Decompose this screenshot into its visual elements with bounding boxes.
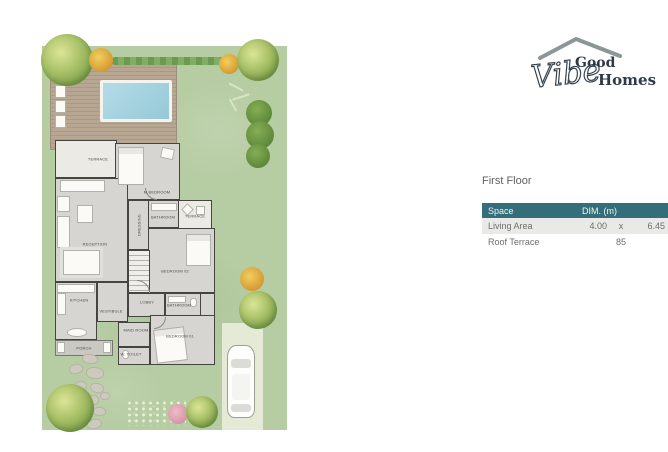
- car-roof: [232, 374, 250, 400]
- room-label: W. TOILET: [121, 352, 142, 357]
- cell-dim-sep: 85: [607, 237, 635, 247]
- room-label: TERRACE: [185, 214, 205, 219]
- room-label: LOBBY: [140, 300, 154, 305]
- cell-space: Living Area: [482, 221, 563, 231]
- room-vestibule: [97, 282, 128, 322]
- kitchen-counter: [57, 284, 95, 293]
- room-label: MAID ROOM: [124, 328, 149, 333]
- car-rear-window: [231, 404, 251, 412]
- room-maid: [118, 322, 150, 347]
- cell-space: Roof Terrace: [482, 237, 563, 247]
- dimensions-table: Space DIM. (m) Living Area 4.00 x 6.45 R…: [482, 203, 668, 250]
- swimming-pool: [100, 80, 172, 122]
- deck-planter: [55, 115, 66, 128]
- armchair: [57, 196, 70, 212]
- tree: [219, 54, 239, 74]
- kitchen-counter: [57, 293, 66, 315]
- flower-bush: [168, 404, 188, 424]
- room-label: PORCH: [76, 346, 91, 351]
- porch-planter: [57, 342, 65, 353]
- car: [227, 345, 255, 418]
- room-label: BATHROOM: [151, 215, 175, 220]
- room-lobby: [128, 293, 165, 317]
- armchair: [160, 147, 175, 160]
- tree: [89, 48, 113, 72]
- room-label: TERRACE: [88, 157, 108, 162]
- sofa: [57, 216, 70, 248]
- logo-word-good: Good: [575, 55, 615, 71]
- logo-word-homes: Homes: [598, 71, 656, 89]
- page: TERRACE M.BEDROOM RECEPTION DRESSING BAT…: [0, 0, 668, 452]
- room-label: M.BEDROOM: [144, 190, 170, 195]
- sofa: [60, 180, 105, 192]
- tree: [41, 34, 93, 86]
- section-title: First Floor: [482, 175, 668, 188]
- deck-planter: [55, 100, 66, 113]
- bed: [118, 147, 144, 185]
- coffee-table: [77, 205, 93, 223]
- tree: [46, 384, 94, 432]
- cell-dim-sep: x: [607, 221, 635, 231]
- porch-planter: [103, 342, 111, 353]
- tree: [239, 291, 277, 329]
- tree: [237, 39, 279, 81]
- header-space: Space: [482, 206, 566, 216]
- room-label: DRESSING: [137, 214, 142, 236]
- room-label: RECEPTION: [83, 242, 108, 247]
- tree: [240, 267, 264, 291]
- table-row: Living Area 4.00 x 6.45: [482, 218, 668, 234]
- room-closet: [200, 293, 215, 317]
- hedge-strip: [112, 57, 232, 65]
- table-row: Roof Terrace 85: [482, 234, 668, 250]
- header-dim: DIM. (m): [566, 206, 668, 216]
- toilet: [190, 298, 197, 307]
- room-label: BEDROOM 01: [166, 334, 194, 339]
- room-label: VESTIBULE: [99, 309, 122, 314]
- kitchen-table: [67, 328, 87, 337]
- path-stone: [100, 392, 110, 400]
- room-label: BEDROOM 02: [161, 269, 189, 274]
- room-label: BATHROOM: [167, 303, 191, 308]
- bathtub: [151, 203, 177, 211]
- cell-dim-1: 4.00: [563, 221, 607, 231]
- room-label: KITCHEN: [70, 298, 89, 303]
- deck-planter: [55, 85, 66, 98]
- tree: [186, 396, 218, 428]
- bed: [186, 234, 211, 266]
- car-windshield: [231, 359, 251, 368]
- bush: [246, 144, 270, 168]
- path-stone: [86, 366, 105, 379]
- path-stone: [93, 407, 106, 417]
- table-header-row: Space DIM. (m): [482, 203, 668, 218]
- bed: [153, 326, 188, 364]
- floor-plan-image: TERRACE M.BEDROOM RECEPTION DRESSING BAT…: [42, 28, 288, 440]
- cell-dim-2: 6.45: [635, 221, 668, 231]
- dining-table: [63, 250, 100, 275]
- dimensions-panel: First Floor Space DIM. (m) Living Area 4…: [482, 175, 668, 250]
